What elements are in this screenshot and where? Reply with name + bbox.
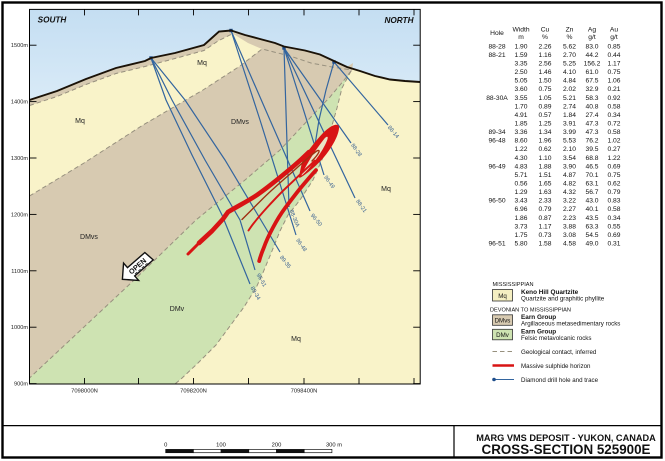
svg-text:0.69: 0.69 <box>607 163 620 170</box>
svg-text:Width: Width <box>512 27 529 34</box>
svg-text:Quartzite and graphitic phylli: Quartzite and graphitic phyllite <box>521 296 605 303</box>
svg-text:4.30: 4.30 <box>514 155 527 162</box>
svg-text:1.22: 1.22 <box>514 146 527 153</box>
svg-text:7098000N: 7098000N <box>71 389 98 395</box>
svg-text:2.33: 2.33 <box>538 198 551 205</box>
svg-text:Argillaceous metasedimentary r: Argillaceous metasedimentary rocks <box>521 320 620 327</box>
svg-text:3.08: 3.08 <box>563 232 576 239</box>
svg-text:0.75: 0.75 <box>538 86 551 93</box>
svg-text:1300m: 1300m <box>11 156 28 162</box>
svg-text:56.7: 56.7 <box>585 189 598 196</box>
svg-text:Mq: Mq <box>197 60 207 67</box>
svg-text:43.5: 43.5 <box>585 215 598 222</box>
svg-text:156.2: 156.2 <box>584 61 601 68</box>
svg-text:0.44: 0.44 <box>607 52 620 59</box>
svg-text:46.5: 46.5 <box>585 163 598 170</box>
svg-text:89-34: 89-34 <box>488 129 505 136</box>
svg-text:2.26: 2.26 <box>538 43 551 50</box>
svg-text:5.53: 5.53 <box>563 138 576 145</box>
svg-text:1.75: 1.75 <box>514 232 527 239</box>
svg-text:SOUTH: SOUTH <box>38 16 68 25</box>
svg-text:96-50: 96-50 <box>488 198 505 205</box>
svg-text:39.5: 39.5 <box>585 146 598 153</box>
svg-text:Mq: Mq <box>498 293 507 300</box>
svg-text:0.58: 0.58 <box>607 103 620 110</box>
svg-text:54.5: 54.5 <box>585 232 598 239</box>
svg-text:43.0: 43.0 <box>585 198 598 205</box>
svg-text:0.62: 0.62 <box>607 181 620 188</box>
svg-text:Mq: Mq <box>75 118 85 125</box>
svg-text:0.79: 0.79 <box>607 189 620 196</box>
svg-text:32.9: 32.9 <box>585 86 598 93</box>
svg-text:3.22: 3.22 <box>563 198 576 205</box>
svg-text:0.83: 0.83 <box>607 198 620 205</box>
svg-text:83.0: 83.0 <box>585 43 598 50</box>
svg-text:1.17: 1.17 <box>607 61 620 68</box>
svg-text:2.27: 2.27 <box>563 206 576 213</box>
svg-text:88-21: 88-21 <box>488 52 505 59</box>
svg-text:0.72: 0.72 <box>607 121 620 128</box>
svg-text:7098400N: 7098400N <box>291 389 318 395</box>
svg-text:0.34: 0.34 <box>607 112 620 119</box>
svg-text:1.65: 1.65 <box>538 181 551 188</box>
svg-text:1.25: 1.25 <box>538 121 551 128</box>
svg-text:3.55: 3.55 <box>514 95 527 102</box>
svg-text:Mq: Mq <box>381 186 391 193</box>
svg-text:5.62: 5.62 <box>563 43 576 50</box>
svg-text:3.88: 3.88 <box>563 223 576 230</box>
svg-text:0.21: 0.21 <box>607 86 620 93</box>
svg-text:1100m: 1100m <box>11 269 28 275</box>
svg-text:63.1: 63.1 <box>585 181 598 188</box>
svg-text:88-30A: 88-30A <box>486 95 508 102</box>
svg-text:96-51: 96-51 <box>488 241 505 248</box>
svg-text:40.1: 40.1 <box>585 206 598 213</box>
svg-text:Ag: Ag <box>588 27 596 34</box>
svg-text:47.3: 47.3 <box>585 121 598 128</box>
svg-text:CROSS-SECTION 525900E: CROSS-SECTION 525900E <box>482 442 651 457</box>
svg-text:4.82: 4.82 <box>563 181 576 188</box>
svg-text:3.99: 3.99 <box>563 129 576 136</box>
svg-text:1500m: 1500m <box>11 43 28 49</box>
svg-text:3.91: 3.91 <box>563 121 576 128</box>
svg-text:2.23: 2.23 <box>563 215 576 222</box>
svg-text:g/t: g/t <box>610 34 618 41</box>
svg-text:1.50: 1.50 <box>538 78 551 85</box>
svg-text:1.22: 1.22 <box>607 155 620 162</box>
svg-text:2.70: 2.70 <box>563 52 576 59</box>
svg-text:Cu: Cu <box>541 27 550 34</box>
svg-text:1.96: 1.96 <box>538 138 551 145</box>
svg-text:DMvs: DMvs <box>495 317 511 324</box>
svg-text:0.55: 0.55 <box>607 223 620 230</box>
svg-text:0.31: 0.31 <box>607 241 620 248</box>
svg-text:0.75: 0.75 <box>607 172 620 179</box>
svg-text:Felsic metavolcanic rocks: Felsic metavolcanic rocks <box>521 335 592 342</box>
svg-text:Hole: Hole <box>490 30 504 37</box>
svg-text:1.29: 1.29 <box>514 189 527 196</box>
svg-text:g/t: g/t <box>588 34 596 41</box>
svg-text:MISSISSIPPIAN: MISSISSIPPIAN <box>493 282 534 288</box>
svg-text:3.35: 3.35 <box>514 61 527 68</box>
svg-text:5.80: 5.80 <box>514 241 527 248</box>
svg-text:5.21: 5.21 <box>563 95 576 102</box>
svg-text:0.89: 0.89 <box>538 103 551 110</box>
svg-text:76.2: 76.2 <box>585 138 598 145</box>
svg-text:3.60: 3.60 <box>514 86 527 93</box>
svg-text:0: 0 <box>164 443 167 449</box>
svg-text:68.8: 68.8 <box>585 155 598 162</box>
svg-text:5.05: 5.05 <box>514 78 527 85</box>
svg-text:1.90: 1.90 <box>514 43 527 50</box>
svg-text:0.58: 0.58 <box>607 206 620 213</box>
svg-text:0.87: 0.87 <box>538 215 551 222</box>
svg-text:0.34: 0.34 <box>607 215 620 222</box>
svg-text:DMv: DMv <box>496 332 510 339</box>
svg-text:2.02: 2.02 <box>563 86 576 93</box>
svg-text:5.25: 5.25 <box>563 61 576 68</box>
svg-text:1.70: 1.70 <box>514 103 527 110</box>
svg-text:DMvs: DMvs <box>80 234 98 241</box>
svg-text:1.05: 1.05 <box>538 95 551 102</box>
svg-text:1.17: 1.17 <box>538 223 551 230</box>
svg-text:4.32: 4.32 <box>563 189 576 196</box>
svg-text:Massive sulphide horizon: Massive sulphide horizon <box>521 363 591 370</box>
svg-text:0.85: 0.85 <box>607 43 620 50</box>
svg-text:0.75: 0.75 <box>607 69 620 76</box>
svg-text:0.62: 0.62 <box>538 146 551 153</box>
svg-text:0.69: 0.69 <box>607 232 620 239</box>
svg-text:0.92: 0.92 <box>607 95 620 102</box>
svg-text:27.4: 27.4 <box>585 112 598 119</box>
svg-text:Au: Au <box>610 27 618 34</box>
svg-text:47.3: 47.3 <box>585 129 598 136</box>
svg-text:1.84: 1.84 <box>563 112 576 119</box>
svg-text:900m: 900m <box>14 382 28 388</box>
svg-text:Mq: Mq <box>291 336 301 343</box>
svg-text:7098200N: 7098200N <box>180 389 207 395</box>
svg-text:2.56: 2.56 <box>538 61 551 68</box>
svg-text:70.1: 70.1 <box>585 172 598 179</box>
svg-text:96-48: 96-48 <box>488 138 505 145</box>
svg-text:0.73: 0.73 <box>538 232 551 239</box>
svg-text:61.0: 61.0 <box>585 69 598 76</box>
svg-text:1.59: 1.59 <box>514 52 527 59</box>
svg-text:0.79: 0.79 <box>538 206 551 213</box>
svg-text:1.06: 1.06 <box>607 78 620 85</box>
svg-text:96-49: 96-49 <box>488 163 505 170</box>
svg-text:1.16: 1.16 <box>538 52 551 59</box>
svg-text:1.10: 1.10 <box>538 155 551 162</box>
svg-text:1.86: 1.86 <box>514 215 527 222</box>
svg-text:4.83: 4.83 <box>514 163 527 170</box>
svg-text:1.51: 1.51 <box>538 172 551 179</box>
svg-text:m: m <box>518 34 524 41</box>
svg-text:Zn: Zn <box>566 27 574 34</box>
svg-text:40.8: 40.8 <box>585 103 598 110</box>
svg-text:NORTH: NORTH <box>385 16 415 25</box>
svg-text:3.73: 3.73 <box>514 223 527 230</box>
svg-text:Diamond drill hole and trace: Diamond drill hole and trace <box>521 377 599 384</box>
svg-text:%: % <box>542 34 548 41</box>
svg-text:2.50: 2.50 <box>514 69 527 76</box>
svg-text:1.88: 1.88 <box>538 163 551 170</box>
svg-text:200: 200 <box>272 443 282 449</box>
svg-text:3.43: 3.43 <box>514 198 527 205</box>
svg-text:88-28: 88-28 <box>488 43 505 50</box>
svg-text:1400m: 1400m <box>11 100 28 106</box>
svg-text:3.54: 3.54 <box>563 155 576 162</box>
svg-text:1.34: 1.34 <box>538 129 551 136</box>
svg-text:4.91: 4.91 <box>514 112 527 119</box>
svg-text:4.84: 4.84 <box>563 78 576 85</box>
svg-text:100: 100 <box>216 443 226 449</box>
svg-text:63.3: 63.3 <box>585 223 598 230</box>
svg-text:%: % <box>567 34 573 41</box>
svg-text:0.57: 0.57 <box>538 112 551 119</box>
svg-text:58.3: 58.3 <box>585 95 598 102</box>
svg-text:0.27: 0.27 <box>607 146 620 153</box>
svg-text:1.58: 1.58 <box>538 241 551 248</box>
svg-text:Geological contact, inferred: Geological contact, inferred <box>521 349 597 356</box>
svg-text:3.90: 3.90 <box>563 163 576 170</box>
svg-text:8.60: 8.60 <box>514 138 527 145</box>
svg-text:2.10: 2.10 <box>563 146 576 153</box>
svg-text:1000m: 1000m <box>11 325 28 331</box>
svg-text:4.58: 4.58 <box>563 241 576 248</box>
svg-text:1.85: 1.85 <box>514 121 527 128</box>
svg-text:4.10: 4.10 <box>563 69 576 76</box>
svg-text:1.02: 1.02 <box>607 138 620 145</box>
svg-text:2.74: 2.74 <box>563 103 576 110</box>
svg-text:5.71: 5.71 <box>514 172 527 179</box>
svg-text:0.56: 0.56 <box>514 181 527 188</box>
svg-text:DEVONIAN TO MISSISSIPPIAN: DEVONIAN TO MISSISSIPPIAN <box>490 308 571 314</box>
svg-text:1.63: 1.63 <box>538 189 551 196</box>
svg-text:300 m: 300 m <box>326 443 342 449</box>
svg-text:0.58: 0.58 <box>607 129 620 136</box>
svg-text:1.46: 1.46 <box>538 69 551 76</box>
svg-text:44.2: 44.2 <box>585 52 598 59</box>
svg-text:49.0: 49.0 <box>585 241 598 248</box>
svg-text:3.36: 3.36 <box>514 129 527 136</box>
svg-text:1200m: 1200m <box>11 212 28 218</box>
svg-text:DMv: DMv <box>170 306 185 313</box>
svg-text:4.87: 4.87 <box>563 172 576 179</box>
svg-text:DMvs: DMvs <box>231 119 249 126</box>
svg-text:67.5: 67.5 <box>585 78 598 85</box>
svg-text:6.96: 6.96 <box>514 206 527 213</box>
